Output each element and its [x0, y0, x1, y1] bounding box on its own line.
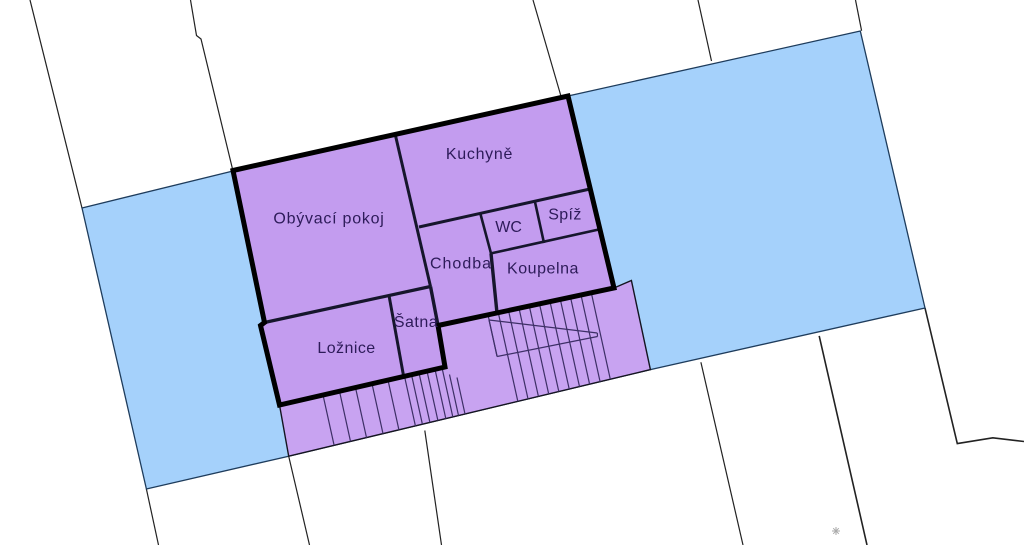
svg-text:Chodba: Chodba	[430, 256, 492, 273]
svg-text:Šatna: Šatna	[394, 312, 438, 331]
svg-text:WC: WC	[495, 219, 522, 236]
svg-text:Koupelna: Koupelna	[507, 261, 579, 278]
svg-text:Ložnice: Ložnice	[317, 340, 375, 357]
svg-text:Obývací pokoj: Obývací pokoj	[273, 211, 384, 228]
svg-text:Kuchyně: Kuchyně	[446, 146, 513, 163]
svg-text:Spíž: Spíž	[548, 207, 582, 224]
